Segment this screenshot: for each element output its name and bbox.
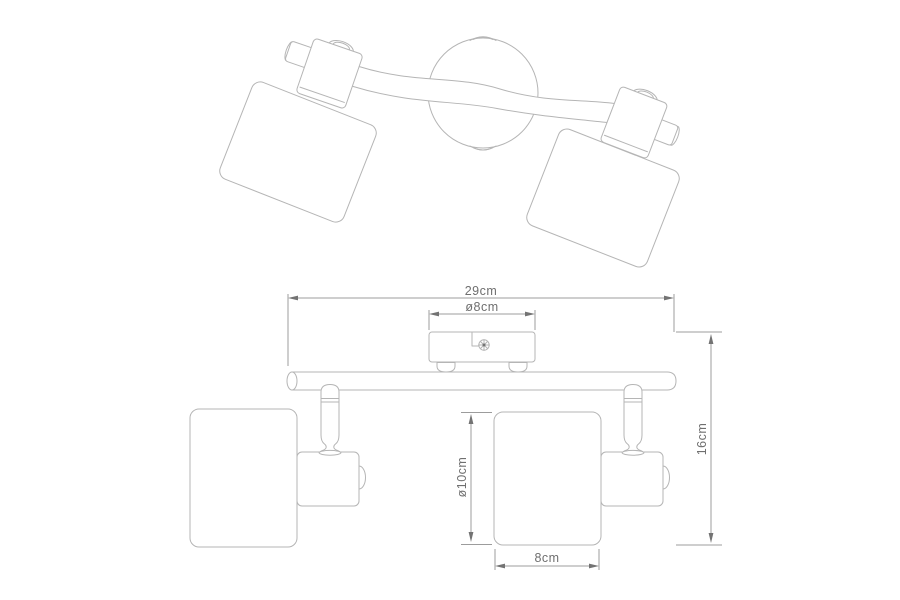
dim-label-o8cm: ø8cm — [465, 300, 498, 314]
dim-label-8cm: 8cm — [534, 551, 559, 565]
perspective-view — [217, 25, 689, 270]
drawing-canvas: 29cm ø8cm 16cm ø10cm 8cm — [0, 0, 900, 600]
canopy-foot-left — [437, 363, 455, 373]
dim-label-o10cm: ø10cm — [455, 457, 469, 498]
dim-label-29cm: 29cm — [465, 284, 498, 298]
left-shade — [190, 409, 297, 547]
elevation-view: 29cm ø8cm 16cm ø10cm 8cm — [190, 284, 722, 570]
mount-bar — [287, 372, 676, 390]
left-body-knob — [359, 466, 366, 489]
right-stem — [622, 385, 644, 456]
curved-bar — [352, 67, 615, 123]
bar-end-cap — [287, 372, 297, 390]
left-lamp-body — [297, 452, 366, 506]
dimension-canopy-diameter: ø8cm — [429, 300, 535, 330]
dimension-shade-diameter: ø10cm — [455, 413, 492, 545]
canopy-foot-right — [509, 363, 527, 373]
dim-label-16cm: 16cm — [695, 423, 709, 456]
right-shade-perspective — [524, 126, 682, 269]
right-shade — [494, 412, 601, 545]
right-body-knob — [663, 466, 670, 489]
left-stem — [319, 385, 341, 456]
right-lamp-body — [601, 452, 670, 506]
canopy-clip-top — [470, 37, 496, 41]
dimension-shade-width: 8cm — [495, 549, 599, 570]
left-shade-perspective — [217, 79, 379, 225]
dimension-total-height: 16cm — [676, 332, 722, 545]
spotlight-technical-drawing: 29cm ø8cm 16cm ø10cm 8cm — [0, 0, 900, 600]
